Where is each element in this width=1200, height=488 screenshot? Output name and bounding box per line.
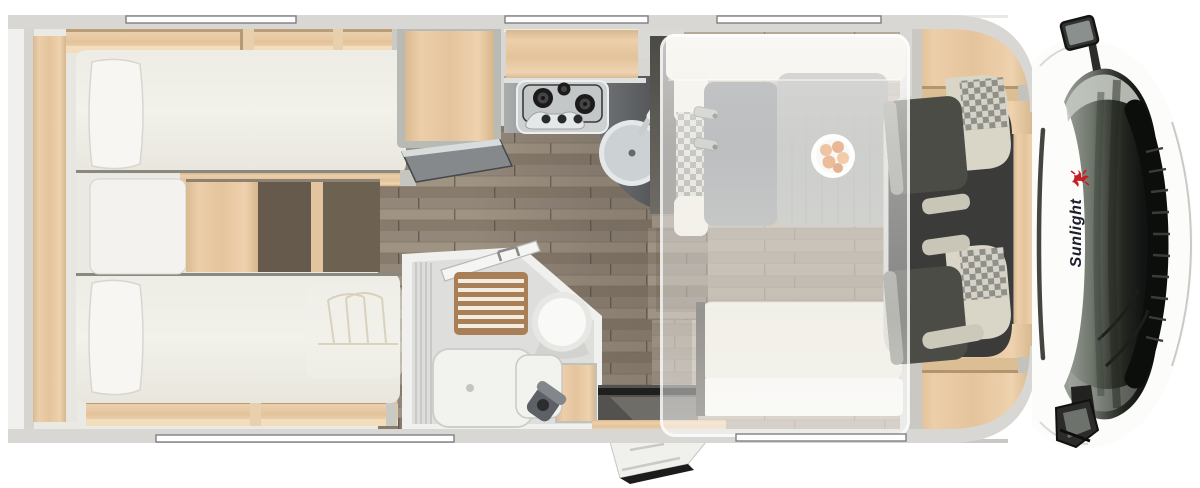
svg-text:Sunlight: Sunlight [1068, 199, 1085, 268]
